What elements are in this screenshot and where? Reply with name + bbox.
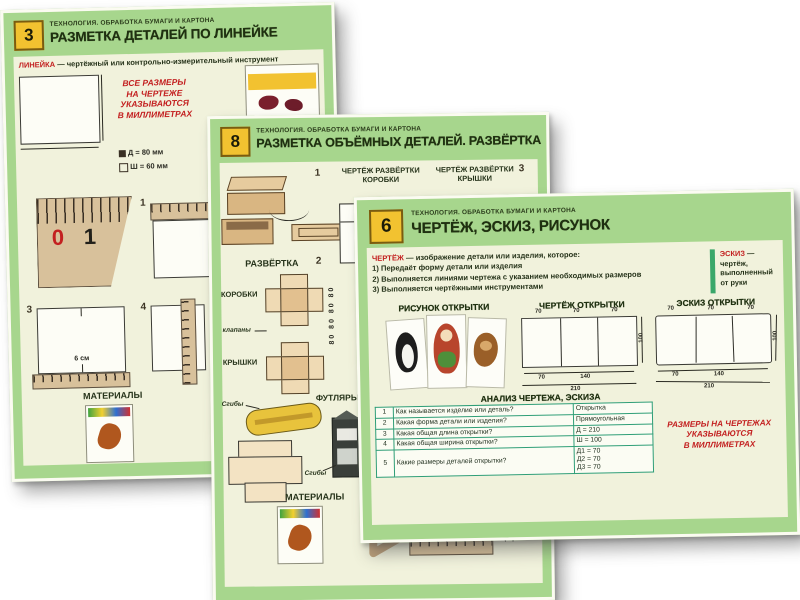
unfold-flap — [281, 379, 309, 394]
unfold-flap — [307, 288, 323, 312]
length-icon — [119, 150, 126, 157]
rectangle-drawing — [19, 75, 101, 145]
length-value: Д = 80 мм — [128, 147, 164, 157]
label-drawing-of-lid-unfold: ЧЕРТЁЖ РАЗВЁРТКИ КРЫШКИ — [435, 165, 515, 183]
sketch-note-bar — [710, 249, 716, 293]
step3-ruler — [32, 372, 130, 389]
width-icon — [119, 163, 128, 172]
card-panel-penguin — [385, 318, 429, 391]
label-folds: Сгибы — [300, 470, 330, 478]
dim-top: 70 — [535, 309, 542, 315]
fold-mark — [82, 364, 83, 372]
row-number: 5 — [376, 450, 395, 477]
label-of-lid: КРЫШКИ — [217, 358, 263, 367]
poster6-note: РАЗМЕРЫ НА ЧЕРТЕЖАХ УКАЗЫВАЮТСЯ В МИЛЛИМ… — [663, 418, 776, 451]
width-legend: Ш = 60 мм — [119, 161, 168, 172]
step-number-4: 4 — [140, 302, 146, 313]
dim-bottom: 140 — [714, 371, 724, 377]
dim-total: 210 — [704, 383, 714, 389]
cardboard-box-open — [221, 218, 273, 245]
dim-top: 70 — [573, 308, 580, 314]
panel-divider — [597, 318, 599, 366]
unfold-center — [281, 356, 309, 380]
step4-paper — [151, 304, 207, 371]
label-flaps: клапаны — [217, 327, 257, 335]
definition-intro: — изображение детали или изделия, которо… — [406, 250, 580, 262]
poster-chertezh-eskiz-risunok: 6 ТЕХНОЛОГИЯ. ОБРАБОТКА БУМАГИ И КАРТОНА… — [354, 189, 800, 543]
note-line: В МИЛЛИМЕТРАХ — [663, 439, 775, 451]
dim-bottom: 140 — [580, 374, 590, 380]
poster3-note: ВСЕ РАЗМЕРЫ НА ЧЕРТЕЖЕ УКАЗЫВАЮТСЯ В МИЛ… — [105, 76, 204, 121]
step-number-2: 2 — [316, 256, 322, 267]
lid-unfold-diagram — [265, 340, 324, 395]
poster3-number-badge: 3 — [14, 20, 45, 51]
pack-picture-blob — [286, 522, 315, 553]
panel-divider — [695, 317, 696, 363]
table-row: 5 Какие размеры деталей открытки? Д1 = 7… — [376, 445, 653, 477]
row-answer-multi: Д1 = 70 Д2 = 70 Д3 = 70 — [574, 445, 653, 473]
poster8-materials-label: МАТЕРИАЛЫ — [255, 491, 375, 503]
dim-bottom: 70 — [672, 372, 679, 378]
row-answer-line: Д3 = 70 — [577, 462, 651, 471]
poster6-series-label: ТЕХНОЛОГИЯ. ОБРАБОТКА БУМАГИ И КАРТОНА — [411, 207, 576, 217]
step-number-1: 1 — [140, 198, 146, 209]
unfold-flap — [308, 356, 324, 380]
label-of-box: КОРОБКИ — [216, 290, 262, 299]
colored-paper-pack — [85, 404, 134, 463]
step1-ruler — [150, 202, 214, 221]
step-number-3: 3 — [26, 304, 32, 315]
dim-height: 100 — [638, 333, 644, 343]
panel-divider — [732, 316, 735, 362]
step1-paper — [152, 219, 213, 278]
card-panel-bear — [466, 317, 507, 388]
poster6-number-badge: 6 — [369, 209, 404, 244]
ruler-one-mark: 1 — [84, 224, 97, 250]
tray-inner — [298, 228, 338, 237]
size-label: 6 см — [39, 354, 125, 363]
matryoshka-apron — [438, 351, 456, 367]
dim-top: 70 — [667, 306, 674, 312]
sketch-rect — [655, 313, 772, 365]
flap-pointer-line — [255, 330, 267, 331]
step-number-3: 3 — [519, 163, 525, 174]
vertical-dimension-figures: 80 80 80 80 — [328, 286, 336, 345]
poster8-title: РАЗМЕТКА ОБЪЁМНЫХ ДЕТАЛЕЙ. РАЗВЁРТКА — [256, 133, 541, 150]
unfold-flap — [280, 311, 308, 326]
label-unfold: РАЗВЁРТКА — [232, 258, 312, 269]
pack-color-strip — [280, 509, 320, 518]
row-number: 2 — [375, 418, 393, 429]
dim-top: 70 — [707, 305, 714, 311]
blueprint-rect — [521, 316, 638, 368]
row-number: 1 — [375, 407, 393, 418]
poster8-number: 8 — [230, 132, 240, 152]
label-folds: Сгибы — [216, 401, 250, 409]
scene: 3 ТЕХНОЛОГИЯ. ОБРАБОТКА БУМАГИ И КАРТОНА… — [0, 0, 800, 600]
row-question: Какие размеры деталей открытки? — [394, 447, 574, 477]
width-value: Ш = 60 мм — [130, 161, 168, 171]
dim-bottom: 70 — [538, 375, 545, 381]
box-opening — [226, 221, 268, 230]
dim-top: 70 — [611, 307, 618, 313]
pack-picture-blob — [95, 421, 124, 452]
product-box-label-strip — [248, 72, 316, 90]
box-unfold-diagram — [264, 272, 323, 327]
dim-height: 100 — [773, 331, 779, 341]
carton-patch — [337, 448, 357, 464]
definition-term: ЧЕРТЁЖ — [372, 253, 404, 263]
poster3-definition-term: ЛИНЕЙКА — [19, 60, 56, 70]
row-number: 4 — [376, 439, 394, 450]
product-box-content-blob — [258, 95, 278, 109]
carton-top — [333, 410, 361, 419]
step-number-1: 1 — [315, 168, 321, 179]
poster6-definition: ЧЕРТЁЖ — изображение детали или изделия,… — [372, 248, 703, 295]
panel-divider — [560, 318, 562, 366]
bottom-dim-line — [524, 371, 634, 374]
unfold-center — [280, 288, 308, 312]
card-panel-matryoshka — [426, 314, 467, 389]
poster3-number: 3 — [24, 25, 34, 45]
unfold-flap — [281, 342, 309, 357]
fold-mark — [81, 308, 82, 316]
poster8-series-label: ТЕХНОЛОГИЯ. ОБРАБОТКА БУМАГИ И КАРТОНА — [256, 125, 421, 134]
step4-ruler — [180, 298, 197, 384]
poster6-title: ЧЕРТЁЖ, ЭСКИЗ, РИСУНОК — [411, 216, 610, 237]
unfold-flap — [280, 274, 308, 289]
product-box-content-blob — [285, 99, 303, 111]
sketch-note: ЭСКИЗ — чертёж, выполненный от руки — [720, 248, 783, 288]
colored-paper-pack — [277, 506, 324, 565]
sketch-term: ЭСКИЗ — [720, 249, 745, 258]
case-body-part — [228, 456, 302, 485]
cardboard-lid — [227, 176, 287, 191]
trifold-card-picture — [387, 313, 504, 391]
pack-color-strip — [88, 407, 130, 417]
row-number: 3 — [376, 429, 394, 440]
poster3-title: РАЗМЕТКА ДЕТАЛЕЙ ПО ЛИНЕЙКЕ — [50, 24, 278, 45]
analysis-table: 1 Как называется изделие или деталь? Отк… — [375, 402, 654, 478]
length-legend: Д = 80 мм — [119, 147, 164, 157]
ruler-zero-mark: 0 — [52, 225, 65, 251]
step3-paper: 6 см — [37, 306, 127, 374]
poster8-number-badge: 8 — [220, 127, 250, 157]
sketch-drawing: 70 70 70 100 70 140 210 — [651, 305, 782, 392]
unfold-flap — [266, 356, 282, 380]
carton-patch — [337, 428, 357, 440]
dim-top: 70 — [747, 305, 754, 311]
pencil-case-band — [255, 412, 313, 425]
blueprint-drawing: 70 70 70 100 70 140 210 — [517, 307, 649, 395]
label-drawing-of-box-unfold: ЧЕРТЁЖ РАЗВЁРТКИ КОРОБКИ — [339, 166, 423, 184]
poster6-number: 6 — [381, 216, 392, 238]
unfold-flap — [265, 288, 281, 312]
cardboard-tray-flat — [291, 223, 345, 241]
